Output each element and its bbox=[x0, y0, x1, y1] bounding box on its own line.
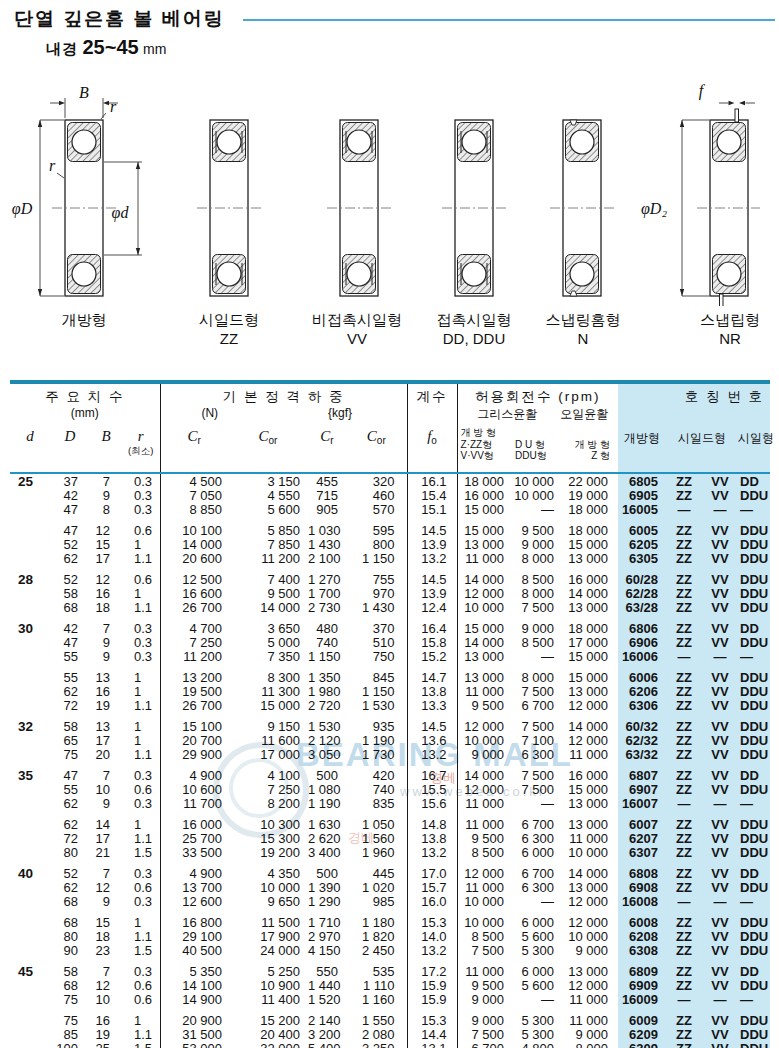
cell-cor-kgf: 750 bbox=[346, 649, 407, 663]
cell-f0: 14.8 bbox=[407, 817, 457, 831]
cell-cor-n: 11 600 bbox=[228, 733, 308, 747]
cell-B: 23 bbox=[90, 943, 122, 957]
col-header-B: B bbox=[90, 424, 122, 473]
cell-speed-grease-open: 12 000 bbox=[457, 866, 512, 880]
cell-cr-kgf: 2 620 bbox=[308, 831, 346, 845]
cell-f0: 13.8 bbox=[407, 831, 457, 845]
dims-group-header: 주 요 치 수 (mm) bbox=[10, 382, 160, 424]
table-row: 5590.311 2007 3501 15075015.213 000—15 0… bbox=[10, 649, 770, 663]
cell-cr-n: 5 350 bbox=[160, 964, 228, 978]
cell-f0: 14.7 bbox=[407, 670, 457, 684]
cell-B: 12 bbox=[90, 523, 122, 537]
cell-cr-kgf: 1 440 bbox=[308, 978, 346, 992]
cell-cr-kgf: 550 bbox=[308, 964, 346, 978]
cell-B: 7 bbox=[90, 964, 122, 978]
cell-part-number: 6206 bbox=[618, 684, 666, 698]
cell-suffix-zz: ZZ bbox=[666, 733, 702, 747]
dim-label-r: r bbox=[110, 98, 117, 115]
table-row: 55100.610 6007 2501 08074015.512 0007 50… bbox=[10, 782, 770, 796]
cell-suffix-zz: — bbox=[666, 649, 702, 663]
cell-D: 80 bbox=[50, 929, 90, 943]
page-subtitle: 내경 25~45 mm bbox=[46, 36, 166, 59]
cell-cr-kgf: 455 bbox=[308, 473, 346, 488]
cell-speed-oil-open: 11 000 bbox=[562, 1013, 618, 1027]
cell-cor-kgf: 1 180 bbox=[346, 915, 407, 929]
cell-r-min: 1 bbox=[122, 537, 160, 551]
diagram-type-code: VV bbox=[312, 329, 402, 348]
table-row: 72171.125 70015 3002 6201 56013.89 5006 … bbox=[10, 831, 770, 845]
cell-cr-n: 31 500 bbox=[160, 1027, 228, 1041]
cell-speed-grease-open: 9 000 bbox=[457, 1013, 512, 1027]
table-row: 80211.533 50019 2003 4001 96013.28 5006 … bbox=[10, 845, 770, 859]
cell-suffix-zz: ZZ bbox=[666, 1027, 702, 1041]
cell-B: 7 bbox=[90, 866, 122, 880]
cell-d bbox=[10, 880, 50, 894]
cell-d bbox=[10, 600, 50, 614]
cell-speed-grease-open: 10 000 bbox=[457, 600, 512, 614]
cell-cor-n: 4 350 bbox=[228, 866, 308, 880]
cell-speed-grease-open: 15 000 bbox=[457, 523, 512, 537]
cell-cor-n: 15 300 bbox=[228, 831, 308, 845]
cell-B: 16 bbox=[90, 684, 122, 698]
cell-suffix-zz: ZZ bbox=[666, 670, 702, 684]
table-row: 6290.311 7008 2001 19083515.611 000—13 0… bbox=[10, 796, 770, 810]
cell-cr-kgf: 2 970 bbox=[308, 929, 346, 943]
cell-suffix-zz: ZZ bbox=[666, 880, 702, 894]
cell-B: 17 bbox=[90, 831, 122, 845]
cell-speed-grease-open: 13 000 bbox=[457, 649, 512, 663]
cell-speed-grease-open: 11 000 bbox=[457, 880, 512, 894]
cell-suffix-seal: DDU bbox=[738, 831, 770, 845]
cell-f0: 14.5 bbox=[407, 523, 457, 537]
cell-part-number: 6005 bbox=[618, 523, 666, 537]
speed-title: 허용회전수 (rpm) bbox=[458, 384, 619, 406]
cell-speed-oil-open: 10 000 bbox=[562, 929, 618, 943]
cell-B: 7 bbox=[90, 621, 122, 635]
cell-suffix-seal: — bbox=[738, 649, 770, 663]
cell-cr-kgf: 715 bbox=[308, 488, 346, 502]
cell-suffix-zz: ZZ bbox=[666, 845, 702, 859]
cell-suffix-zz: ZZ bbox=[666, 929, 702, 943]
table-row: 72191.126 70015 0002 7201 53013.39 5006 … bbox=[10, 698, 770, 712]
cell-speed-grease-du: — bbox=[512, 649, 562, 663]
table-row: 100251.553 00032 0005 4003 25013.16 7004… bbox=[10, 1041, 770, 1048]
cell-cor-n: 7 250 bbox=[228, 782, 308, 796]
cell-cr-n: 20 700 bbox=[160, 733, 228, 747]
cell-speed-oil-open: 18 000 bbox=[562, 523, 618, 537]
cell-suffix-seal: DDU bbox=[738, 488, 770, 502]
cell-cr-kgf: 500 bbox=[308, 768, 346, 782]
cell-D: 75 bbox=[50, 747, 90, 761]
cell-part-number: 6208 bbox=[618, 929, 666, 943]
cell-suffix-vv: VV bbox=[702, 943, 738, 957]
cell-D: 42 bbox=[50, 621, 90, 635]
cell-d bbox=[10, 992, 50, 1006]
cell-cor-kgf: 1 560 bbox=[346, 831, 407, 845]
cell-B: 9 bbox=[90, 649, 122, 663]
cell-speed-grease-open: 7 500 bbox=[457, 1027, 512, 1041]
cell-cr-n: 16 800 bbox=[160, 915, 228, 929]
cell-speed-grease-du: 6 000 bbox=[512, 915, 562, 929]
cell-r-min: 0.6 bbox=[122, 992, 160, 1006]
cell-speed-oil-open: 19 000 bbox=[562, 488, 618, 502]
cell-cor-kgf: 935 bbox=[346, 719, 407, 733]
cell-speed-grease-du: — bbox=[512, 502, 562, 516]
cell-speed-grease-open: 9 000 bbox=[457, 747, 512, 761]
cell-B: 18 bbox=[90, 929, 122, 943]
cell-d bbox=[10, 1013, 50, 1027]
cell-speed-grease-du: 5 600 bbox=[512, 929, 562, 943]
cell-r-min: 1 bbox=[122, 586, 160, 600]
col-header-d: d bbox=[10, 424, 50, 473]
cell-f0: 14.5 bbox=[407, 719, 457, 733]
cell-speed-grease-open: 12 000 bbox=[457, 719, 512, 733]
cell-cor-n: 8 200 bbox=[228, 796, 308, 810]
cell-cor-n: 5 600 bbox=[228, 502, 308, 516]
diagram-type-name: 비접촉시일형 bbox=[312, 310, 402, 329]
cell-cor-kgf: 985 bbox=[346, 894, 407, 908]
cell-cr-kgf: 1 630 bbox=[308, 817, 346, 831]
cell-r-min: 0.6 bbox=[122, 523, 160, 537]
cell-cor-kgf: 320 bbox=[346, 473, 407, 488]
table-row: 85191.131 50020 4003 2002 08014.47 5005 … bbox=[10, 1027, 770, 1041]
cell-D: 47 bbox=[50, 768, 90, 782]
cell-suffix-vv: VV bbox=[702, 719, 738, 733]
diagram-caption-non-contact-seal: 비접촉시일형VV bbox=[312, 310, 402, 348]
cell-r-min: 0.6 bbox=[122, 572, 160, 586]
cell-speed-grease-du: 7 500 bbox=[512, 719, 562, 733]
cell-suffix-seal: — bbox=[738, 502, 770, 516]
cell-suffix-seal: DDU bbox=[738, 880, 770, 894]
diagram-caption-open: 개방형 bbox=[62, 310, 107, 329]
cell-speed-grease-open: 7 500 bbox=[457, 943, 512, 957]
cell-speed-grease-du: 7 500 bbox=[512, 768, 562, 782]
cell-suffix-vv: VV bbox=[702, 523, 738, 537]
cell-cr-kgf: 2 730 bbox=[308, 600, 346, 614]
cell-f0: 13.9 bbox=[407, 586, 457, 600]
dim-label-phi-D2: φD₂ bbox=[641, 200, 667, 218]
cell-r-min: 0.3 bbox=[122, 796, 160, 810]
cell-cor-n: 11 200 bbox=[228, 551, 308, 565]
cell-speed-grease-du: — bbox=[512, 894, 562, 908]
cell-part-number: 16009 bbox=[618, 992, 666, 1006]
cell-D: 75 bbox=[50, 992, 90, 1006]
cell-suffix-zz: — bbox=[666, 894, 702, 908]
cell-B: 19 bbox=[90, 698, 122, 712]
cell-r-min: 1.1 bbox=[122, 698, 160, 712]
cell-cr-n: 20 900 bbox=[160, 1013, 228, 1027]
cell-cor-kgf: 2 080 bbox=[346, 1027, 407, 1041]
cell-f0: 15.8 bbox=[407, 635, 457, 649]
cell-suffix-zz: ZZ bbox=[666, 586, 702, 600]
cell-suffix-zz: ZZ bbox=[666, 698, 702, 712]
cell-D: 68 bbox=[50, 600, 90, 614]
cell-f0: 14.0 bbox=[407, 929, 457, 943]
cell-d bbox=[10, 488, 50, 502]
cell-suffix-vv: — bbox=[702, 894, 738, 908]
cell-d: 30 bbox=[10, 621, 50, 635]
cell-r-min: 0.3 bbox=[122, 964, 160, 978]
cell-suffix-zz: ZZ bbox=[666, 572, 702, 586]
cell-cr-kgf: 1 430 bbox=[308, 537, 346, 551]
cell-cr-n: 15 100 bbox=[160, 719, 228, 733]
diagram-type-name: 스냅링홈형 bbox=[546, 310, 621, 329]
figure-open: BrrφDφd bbox=[0, 78, 170, 310]
cell-suffix-vv: VV bbox=[702, 817, 738, 831]
cell-speed-grease-du: 10 000 bbox=[512, 473, 562, 488]
cell-d bbox=[10, 943, 50, 957]
cell-d bbox=[10, 586, 50, 600]
cell-speed-grease-open: 10 000 bbox=[457, 733, 512, 747]
row-spacer bbox=[10, 712, 770, 719]
cell-cor-kgf: 370 bbox=[346, 621, 407, 635]
diagram-caption-snap-ring: 스냅립형NR bbox=[700, 310, 760, 348]
bearing-data-table: 주 요 치 수 (mm) 기 본 정 격 하 중 (N) {kgf} 계수 허용… bbox=[10, 380, 770, 1048]
cell-D: 72 bbox=[50, 831, 90, 845]
cell-f0: 13.3 bbox=[407, 698, 457, 712]
cell-cor-kgf: 1 020 bbox=[346, 880, 407, 894]
table-row: 4290.37 0504 55071546015.416 00010 00019… bbox=[10, 488, 770, 502]
col-header-number-seal: 시일형 bbox=[738, 424, 770, 473]
cell-D: 47 bbox=[50, 523, 90, 537]
cell-B: 14 bbox=[90, 817, 122, 831]
cell-f0: 15.4 bbox=[407, 488, 457, 502]
cell-B: 15 bbox=[90, 537, 122, 551]
cell-suffix-seal: DDU bbox=[738, 1027, 770, 1041]
cell-speed-oil-open: 12 000 bbox=[562, 733, 618, 747]
dim-label-phi-d: φd bbox=[112, 204, 130, 222]
cell-suffix-seal: DDU bbox=[738, 1041, 770, 1048]
cell-cor-n: 17 900 bbox=[228, 929, 308, 943]
col-header-cr-n: Cr bbox=[160, 424, 228, 473]
cell-cor-kgf: 835 bbox=[346, 796, 407, 810]
cell-cor-n: 7 850 bbox=[228, 537, 308, 551]
cell-cor-kgf: 1 730 bbox=[346, 747, 407, 761]
cell-speed-oil-open: 13 000 bbox=[562, 880, 618, 894]
cell-speed-oil-open: 16 000 bbox=[562, 572, 618, 586]
cell-speed-grease-open: 12 000 bbox=[457, 782, 512, 796]
cell-speed-grease-du: 6 700 bbox=[512, 698, 562, 712]
number-group-header: 호 칭 번 호 bbox=[618, 382, 770, 424]
cell-suffix-vv: VV bbox=[702, 929, 738, 943]
cell-d bbox=[10, 670, 50, 684]
cell-part-number: 6009 bbox=[618, 1013, 666, 1027]
cell-suffix-seal: DDU bbox=[738, 523, 770, 537]
cell-D: 62 bbox=[50, 684, 90, 698]
cell-cor-kgf: 1 150 bbox=[346, 551, 407, 565]
cell-r-min: 0.3 bbox=[122, 488, 160, 502]
col-header-grease-du: D U 형 DDU형 bbox=[512, 424, 562, 473]
cell-cor-n: 10 300 bbox=[228, 817, 308, 831]
cell-speed-grease-du: 8 500 bbox=[512, 572, 562, 586]
table-row: 68181.126 70014 0002 7301 43012.410 0007… bbox=[10, 600, 770, 614]
cell-speed-grease-open: 12 000 bbox=[457, 586, 512, 600]
cell-D: 62 bbox=[50, 796, 90, 810]
diagram-caption-contact-seal: 접촉시일형DD, DDU bbox=[437, 310, 512, 348]
cell-cor-n: 8 300 bbox=[228, 670, 308, 684]
cell-r-min: 0.3 bbox=[122, 635, 160, 649]
cell-suffix-seal: DD bbox=[738, 866, 770, 880]
cell-f0: 13.6 bbox=[407, 733, 457, 747]
cell-r-min: 1.5 bbox=[122, 943, 160, 957]
cell-D: 58 bbox=[50, 719, 90, 733]
cell-speed-grease-du: 7 500 bbox=[512, 684, 562, 698]
cell-D: 47 bbox=[50, 502, 90, 516]
cell-d bbox=[10, 523, 50, 537]
cell-B: 19 bbox=[90, 1027, 122, 1041]
cell-cr-n: 16 000 bbox=[160, 817, 228, 831]
cell-D: 42 bbox=[50, 488, 90, 502]
cell-suffix-vv: — bbox=[702, 992, 738, 1006]
cell-B: 9 bbox=[90, 488, 122, 502]
cell-cr-kgf: 1 980 bbox=[308, 684, 346, 698]
cell-cor-kgf: 1 430 bbox=[346, 600, 407, 614]
cell-speed-oil-open: 18 000 bbox=[562, 502, 618, 516]
cell-suffix-seal: DD bbox=[738, 621, 770, 635]
cell-cr-kgf: 2 720 bbox=[308, 698, 346, 712]
cell-f0: 16.7 bbox=[407, 768, 457, 782]
row-spacer bbox=[10, 859, 770, 866]
cell-suffix-seal: DDU bbox=[738, 943, 770, 957]
cell-cr-kgf: 2 120 bbox=[308, 733, 346, 747]
cell-suffix-zz: ZZ bbox=[666, 551, 702, 565]
cell-cr-kgf: 1 350 bbox=[308, 670, 346, 684]
cell-cr-n: 12 600 bbox=[160, 894, 228, 908]
cell-cr-n: 4 700 bbox=[160, 621, 228, 635]
page-title: 단열 깊은홈 볼 베어링 bbox=[14, 6, 225, 32]
grease-label: 그리스윤활 bbox=[477, 406, 537, 423]
table-row: 405270.34 9004 35050044517.012 0006 7001… bbox=[10, 866, 770, 880]
cell-suffix-vv: VV bbox=[702, 684, 738, 698]
cell-speed-grease-du: 6 000 bbox=[512, 964, 562, 978]
cell-B: 21 bbox=[90, 845, 122, 859]
cell-cor-n: 11 300 bbox=[228, 684, 308, 698]
cell-speed-grease-open: 9 500 bbox=[457, 698, 512, 712]
cell-cr-kgf: 480 bbox=[308, 621, 346, 635]
cell-suffix-zz: ZZ bbox=[666, 523, 702, 537]
col-header-oil-open: 개 방 형 Z 형 bbox=[562, 424, 618, 473]
cell-suffix-vv: VV bbox=[702, 768, 738, 782]
row-spacer bbox=[10, 663, 770, 670]
cell-speed-oil-open: 12 000 bbox=[562, 894, 618, 908]
cell-d: 32 bbox=[10, 719, 50, 733]
cell-speed-grease-open: 14 000 bbox=[457, 635, 512, 649]
cell-speed-grease-open: 14 000 bbox=[457, 572, 512, 586]
cell-f0: 15.6 bbox=[407, 796, 457, 810]
cell-cr-kgf: 4 150 bbox=[308, 943, 346, 957]
cell-cr-kgf: 5 400 bbox=[308, 1041, 346, 1048]
cell-suffix-seal: DDU bbox=[738, 733, 770, 747]
cell-cr-kgf: 1 080 bbox=[308, 782, 346, 796]
cell-suffix-zz: — bbox=[666, 502, 702, 516]
cell-cr-kgf: 2 100 bbox=[308, 551, 346, 565]
cell-speed-oil-open: 10 000 bbox=[562, 845, 618, 859]
cell-cr-n: 11 200 bbox=[160, 649, 228, 663]
cell-cr-kgf: 3 050 bbox=[308, 747, 346, 761]
cell-suffix-seal: DDU bbox=[738, 670, 770, 684]
cell-cor-n: 5 850 bbox=[228, 523, 308, 537]
row-spacer bbox=[10, 810, 770, 817]
cell-cr-n: 10 600 bbox=[160, 782, 228, 796]
cell-suffix-seal: DDU bbox=[738, 600, 770, 614]
cell-B: 8 bbox=[90, 502, 122, 516]
cell-suffix-seal: DD bbox=[738, 768, 770, 782]
cell-cor-n: 11 400 bbox=[228, 992, 308, 1006]
cell-cor-kgf: 845 bbox=[346, 670, 407, 684]
cell-speed-grease-du: 8 000 bbox=[512, 586, 562, 600]
cell-f0: 14.5 bbox=[407, 572, 457, 586]
cell-cor-kgf: 1 530 bbox=[346, 698, 407, 712]
bearing-diagram-snap-ring-groove-icon bbox=[547, 78, 617, 306]
cell-B: 7 bbox=[90, 768, 122, 782]
cell-speed-oil-open: 15 000 bbox=[562, 670, 618, 684]
cell-speed-oil-open: 16 000 bbox=[562, 768, 618, 782]
cell-cor-kgf: 3 250 bbox=[346, 1041, 407, 1048]
cell-suffix-vv: VV bbox=[702, 670, 738, 684]
cell-speed-oil-open: 11 000 bbox=[562, 992, 618, 1006]
cell-speed-oil-open: 11 000 bbox=[562, 747, 618, 761]
cell-r-min: 1.1 bbox=[122, 929, 160, 943]
figure-non-contact-seal bbox=[324, 78, 394, 310]
cell-d bbox=[10, 894, 50, 908]
cell-suffix-seal: DD bbox=[738, 473, 770, 488]
table-row: 5816116 6009 5001 70097013.912 0008 0001… bbox=[10, 586, 770, 600]
cell-suffix-zz: ZZ bbox=[666, 488, 702, 502]
cell-D: 80 bbox=[50, 845, 90, 859]
cell-part-number: 6207 bbox=[618, 831, 666, 845]
cell-suffix-zz: ZZ bbox=[666, 831, 702, 845]
cell-part-number: 6909 bbox=[618, 978, 666, 992]
cell-suffix-vv: VV bbox=[702, 537, 738, 551]
cell-speed-grease-open: 9 500 bbox=[457, 978, 512, 992]
cell-f0: 15.5 bbox=[407, 782, 457, 796]
cell-speed-grease-open: 11 000 bbox=[457, 964, 512, 978]
cell-D: 62 bbox=[50, 551, 90, 565]
cell-part-number: 6209 bbox=[618, 1027, 666, 1041]
cell-cr-n: 29 900 bbox=[160, 747, 228, 761]
dim-label-phi-D: φD bbox=[12, 200, 33, 218]
cell-speed-grease-du: 8 000 bbox=[512, 551, 562, 565]
cell-D: 85 bbox=[50, 1027, 90, 1041]
col-header-cor-kgf: Cor bbox=[346, 424, 407, 473]
cell-cor-kgf: 1 050 bbox=[346, 817, 407, 831]
cell-part-number: 6308 bbox=[618, 943, 666, 957]
table-row: 455870.35 3505 25055053517.211 0006 0001… bbox=[10, 964, 770, 978]
cell-D: 68 bbox=[50, 978, 90, 992]
cell-cor-n: 7 350 bbox=[228, 649, 308, 663]
cell-speed-oil-open: 13 000 bbox=[562, 600, 618, 614]
cell-r-min: 0.6 bbox=[122, 880, 160, 894]
cell-part-number: 16007 bbox=[618, 796, 666, 810]
cell-r-min: 1.5 bbox=[122, 1041, 160, 1048]
cell-suffix-zz: ZZ bbox=[666, 600, 702, 614]
cell-cr-n: 26 700 bbox=[160, 600, 228, 614]
speed-group-header: 허용회전수 (rpm) 그리스윤활 오일윤활 bbox=[457, 382, 618, 424]
cell-speed-grease-du: 9 500 bbox=[512, 523, 562, 537]
cell-B: 12 bbox=[90, 572, 122, 586]
cell-cr-n: 14 100 bbox=[160, 978, 228, 992]
cell-cr-kgf: 3 400 bbox=[308, 845, 346, 859]
cell-r-min: 1 bbox=[122, 670, 160, 684]
cell-suffix-seal: DDU bbox=[738, 782, 770, 796]
cell-cr-kgf: 3 200 bbox=[308, 1027, 346, 1041]
cell-f0: 15.9 bbox=[407, 992, 457, 1006]
col-header-number-open: 개방형 bbox=[618, 424, 666, 473]
table-row: 354770.34 9004 10050042016.714 0007 5001… bbox=[10, 768, 770, 782]
table-row: 68120.614 10010 9001 4401 11015.99 5005 … bbox=[10, 978, 770, 992]
cell-D: 90 bbox=[50, 943, 90, 957]
cell-part-number: 6907 bbox=[618, 782, 666, 796]
